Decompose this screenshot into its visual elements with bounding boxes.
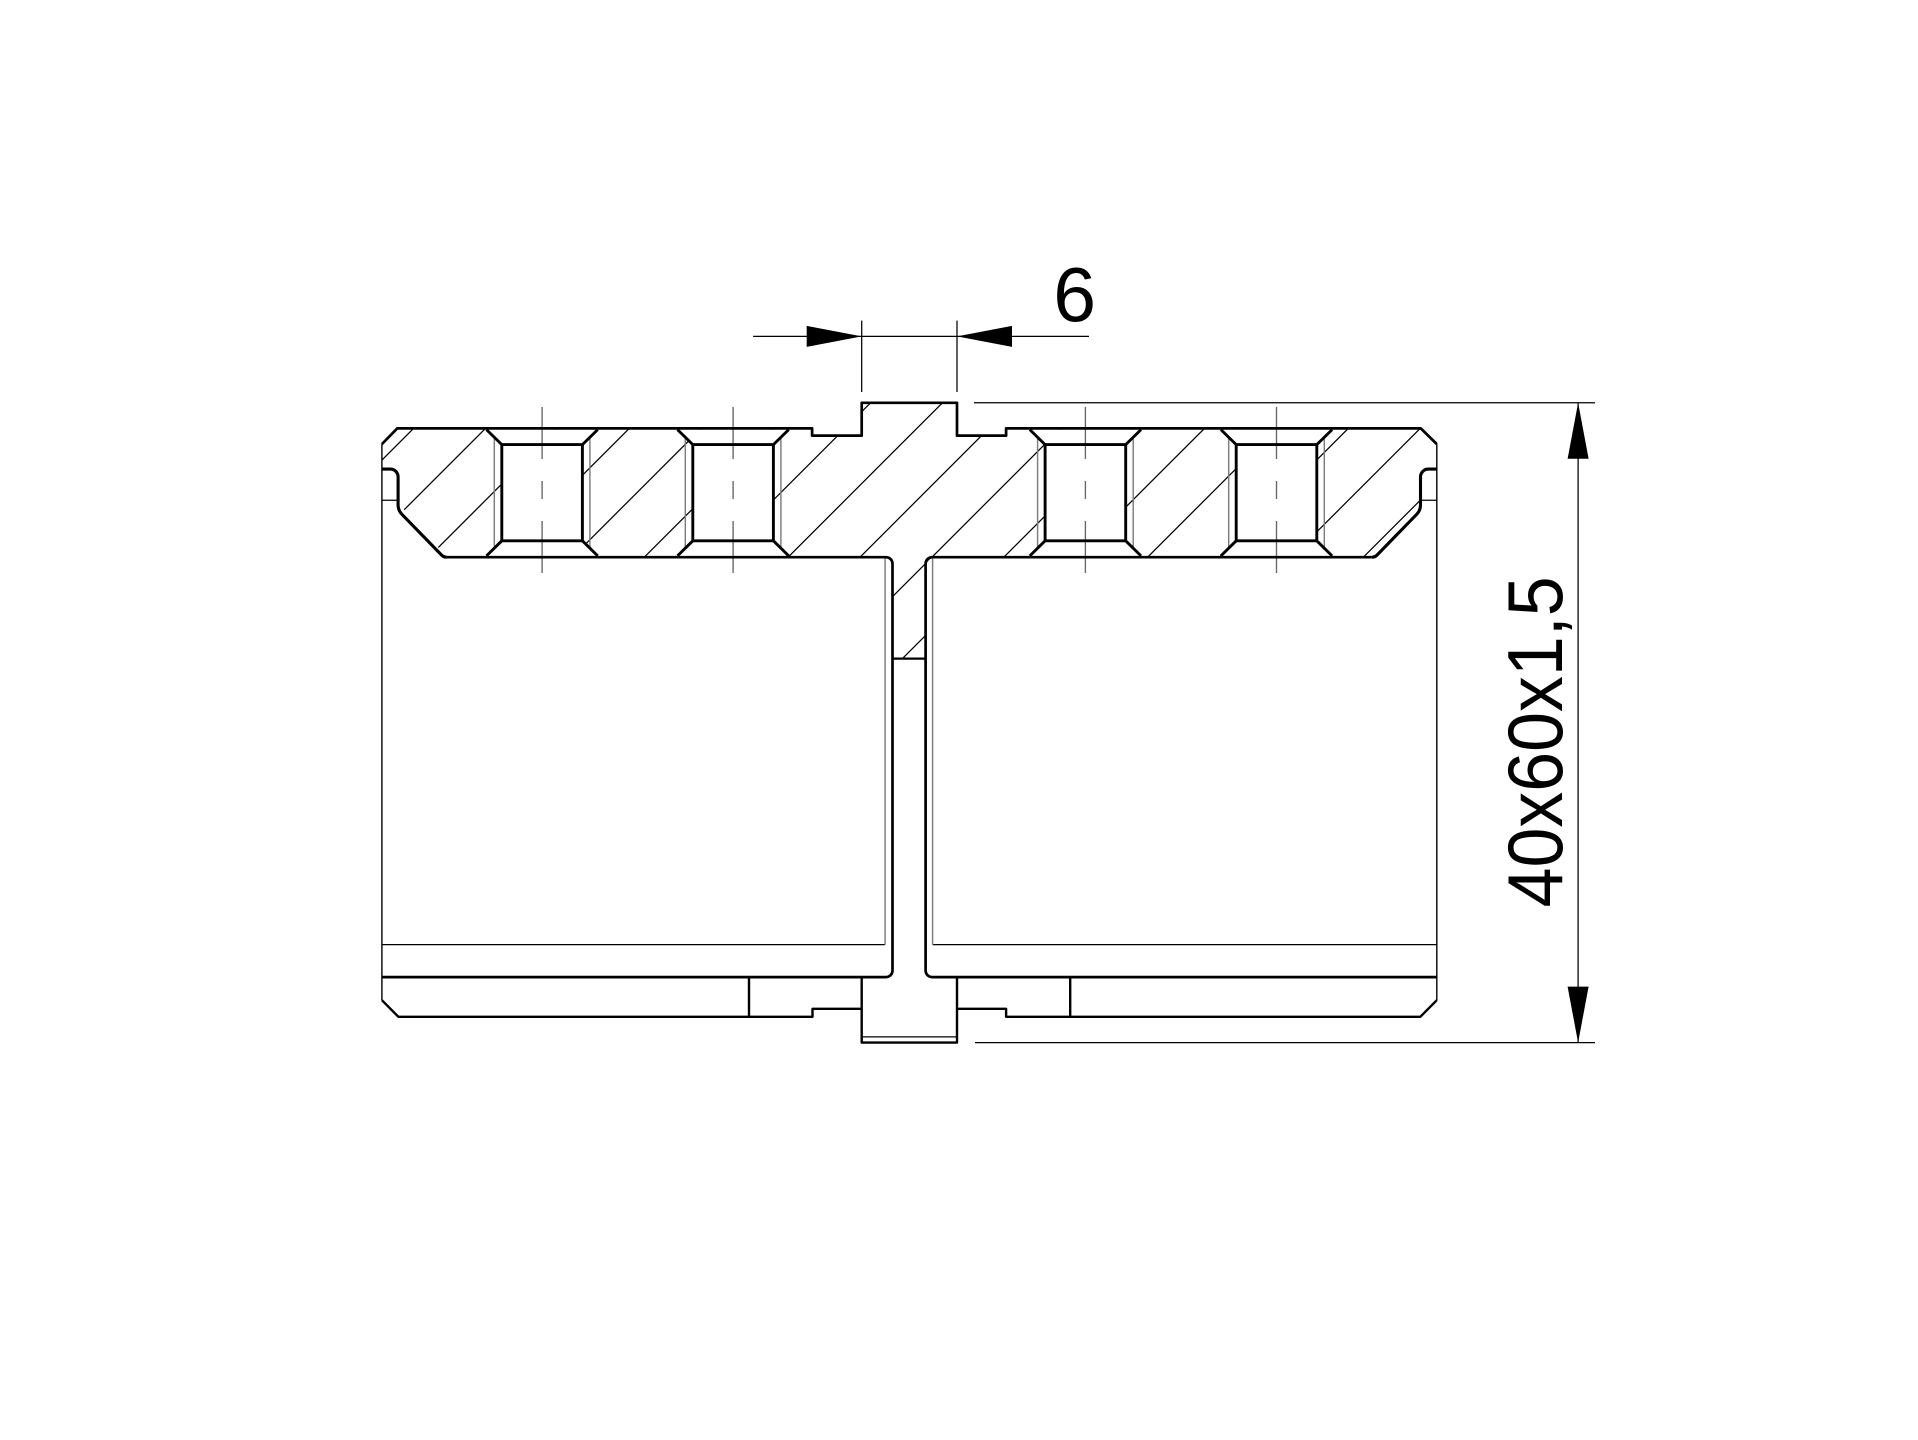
svg-text:40x60x1,5: 40x60x1,5: [1491, 576, 1579, 907]
svg-text:6: 6: [1053, 253, 1096, 339]
